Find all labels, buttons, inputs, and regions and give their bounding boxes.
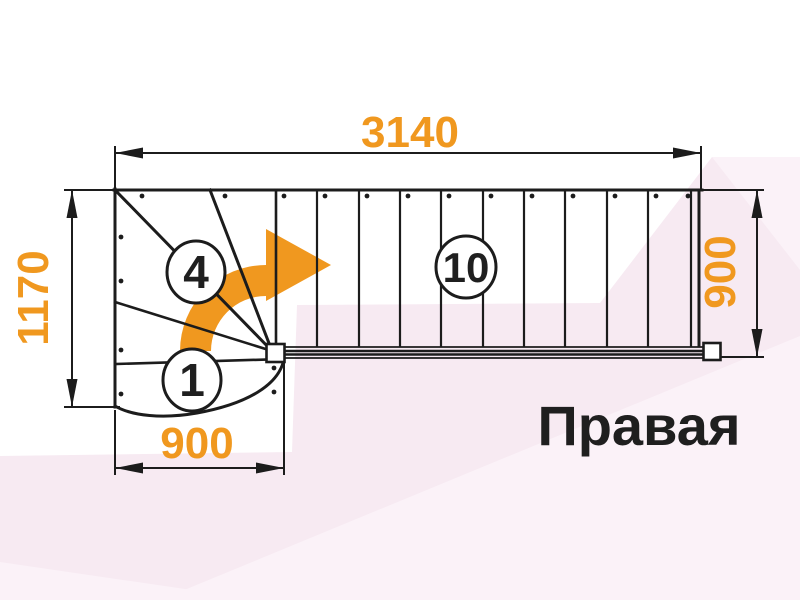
baluster-dot [119,279,124,284]
baluster-dot [140,194,145,199]
baluster-dot [365,194,370,199]
dimension-top-label: 3140 [361,108,459,157]
step-winder-label: 4 [183,246,209,298]
baluster-dot [282,194,287,199]
baluster-dot [323,194,328,199]
baluster-dot [686,194,691,199]
stair-plan-diagram: 1 4 10 3140 1170 [0,0,800,600]
dimension-arrowhead [67,379,78,407]
baluster-dot [654,194,659,199]
orientation-label: Правая [537,394,740,457]
dimension-top: 3140 [115,108,701,190]
baluster-dot [223,194,228,199]
baluster-dot [613,194,618,199]
baluster-dot [272,366,277,371]
baluster-dot [272,390,277,395]
step-straight-label: 10 [443,244,490,291]
baluster-dot [530,194,535,199]
dimension-bottom-label: 900 [160,419,233,468]
baluster-dot [447,194,452,199]
baluster-dot [119,235,124,240]
newel-post-right [704,343,721,360]
step-first-label: 1 [179,354,205,406]
baluster-dot [119,392,124,397]
baluster-dot [489,194,494,199]
baluster-dot [571,194,576,199]
dimension-arrowhead [67,190,78,218]
dimension-left: 1170 [9,190,120,407]
dimension-right-label: 900 [696,235,745,308]
dimension-arrowhead [115,148,143,159]
baluster-dot [406,194,411,199]
stair-plan-svg: 1 4 10 3140 1170 [0,0,800,600]
dimension-left-label: 1170 [9,250,58,345]
baluster-dot [119,348,124,353]
newel-post-left [267,344,285,362]
dimension-arrowhead [673,148,701,159]
